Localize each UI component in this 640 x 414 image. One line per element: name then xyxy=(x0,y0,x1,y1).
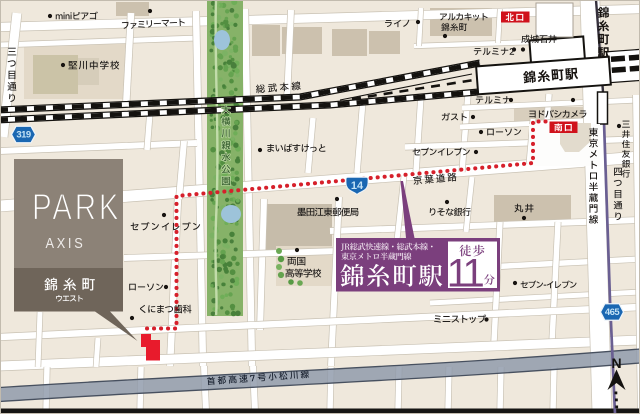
svg-text:465: 465 xyxy=(605,307,621,318)
svg-text:14: 14 xyxy=(351,180,364,192)
svg-text:319: 319 xyxy=(16,130,31,141)
svg-text:11: 11 xyxy=(447,252,484,296)
svg-text:N: N xyxy=(611,355,621,371)
svg-text:PARK: PARK xyxy=(32,187,121,228)
svg-text:AXIS: AXIS xyxy=(46,234,86,251)
